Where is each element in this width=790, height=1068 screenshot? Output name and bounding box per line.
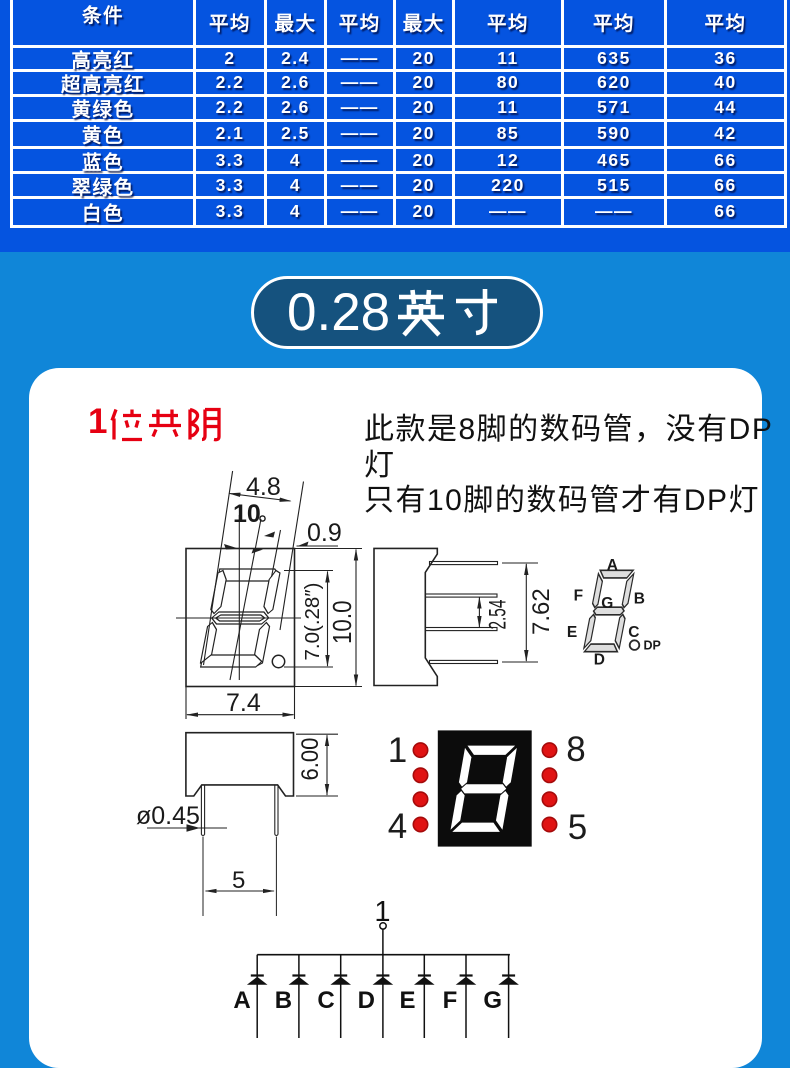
svg-text:B: B <box>275 987 292 1014</box>
svg-text:E: E <box>399 987 415 1014</box>
svg-text:4.8: 4.8 <box>246 473 281 501</box>
svg-text:F: F <box>443 987 458 1014</box>
svg-text:1: 1 <box>388 731 407 770</box>
svg-text:ø0.45: ø0.45 <box>136 802 200 830</box>
svg-text:4: 4 <box>388 807 407 846</box>
svg-text:7.62: 7.62 <box>528 588 555 635</box>
svg-text:C: C <box>317 987 334 1014</box>
svg-text:5: 5 <box>568 808 587 847</box>
svg-text:F: F <box>574 588 583 605</box>
svg-text:2.54: 2.54 <box>485 600 511 630</box>
svg-text:G: G <box>483 987 502 1014</box>
svg-text:10: 10 <box>233 500 261 528</box>
svg-text:8: 8 <box>566 730 585 769</box>
svg-text:7.4: 7.4 <box>226 689 261 717</box>
svg-text:B: B <box>634 590 645 607</box>
svg-text:D: D <box>358 987 375 1014</box>
svg-text:E: E <box>567 624 577 641</box>
svg-text:6.00: 6.00 <box>296 738 323 781</box>
svg-text:A: A <box>607 557 618 574</box>
svg-text:10.0: 10.0 <box>328 601 357 644</box>
svg-text:C: C <box>628 624 639 641</box>
svg-text:7.0(.28″): 7.0(.28″) <box>301 583 324 661</box>
svg-text:0.9: 0.9 <box>307 519 342 547</box>
svg-text:D: D <box>594 652 605 669</box>
svg-text:DP: DP <box>644 639 661 653</box>
svg-text:G: G <box>601 595 613 612</box>
svg-text:A: A <box>233 987 250 1014</box>
svg-text:5: 5 <box>232 867 245 894</box>
